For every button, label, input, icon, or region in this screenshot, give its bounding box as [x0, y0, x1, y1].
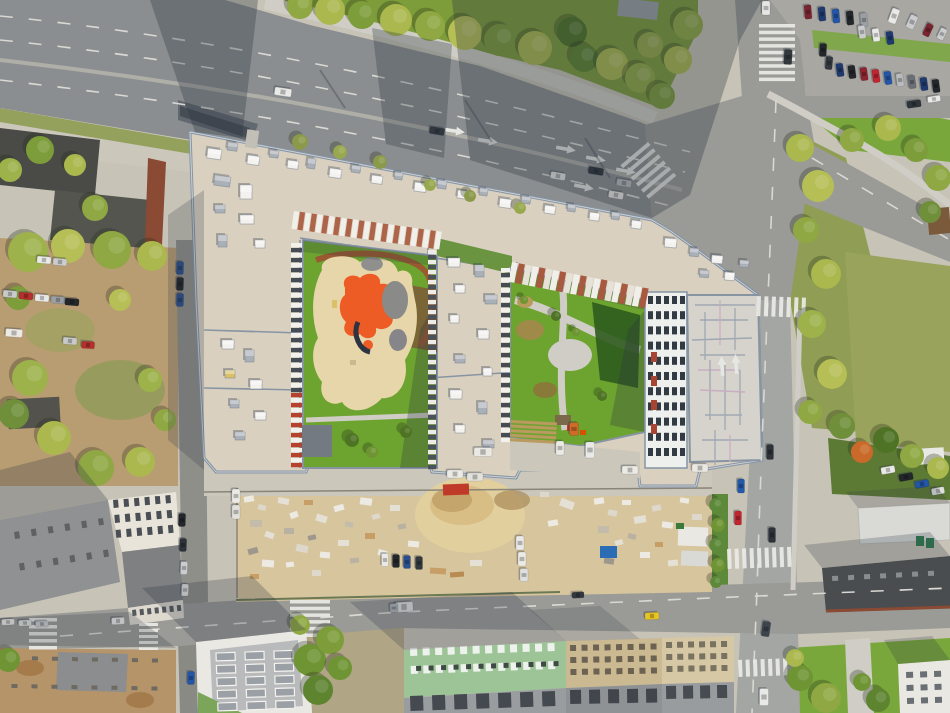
window-cell — [664, 342, 669, 350]
window-cell — [648, 311, 653, 319]
window-cell — [616, 644, 622, 650]
facade-stripe — [428, 375, 436, 379]
window-cell — [478, 664, 483, 669]
facade-stripe — [501, 368, 510, 372]
window-cell — [593, 644, 599, 650]
window-cell — [581, 645, 587, 651]
hvac-top — [250, 380, 262, 385]
zebra-stripe — [787, 547, 792, 567]
window-cell — [680, 342, 685, 350]
window-cell — [553, 661, 558, 666]
hvac-top — [215, 205, 225, 209]
hvac-unit — [542, 203, 556, 215]
window-grid — [906, 671, 942, 704]
window-cell — [672, 342, 677, 350]
facade-stripe — [501, 388, 510, 392]
window-cell — [217, 677, 236, 686]
car-glass — [522, 573, 527, 577]
zebra-stripe — [290, 600, 330, 604]
window-cell — [721, 653, 727, 659]
window-cell — [664, 433, 669, 441]
window-cell — [680, 326, 685, 334]
window-cell — [274, 650, 293, 659]
hvac-top — [240, 185, 252, 192]
tree-highlight — [928, 204, 938, 214]
hvac-unit — [220, 338, 234, 349]
window-cell — [135, 513, 141, 521]
hvac-unit — [476, 400, 487, 414]
debris-item — [443, 484, 469, 496]
window-cell — [605, 668, 611, 674]
car-glass — [886, 468, 891, 473]
car-glass — [480, 449, 485, 454]
window-cell — [570, 657, 576, 663]
facade-stripe — [501, 288, 510, 292]
debris-item — [600, 546, 617, 558]
window-cell — [582, 669, 588, 675]
tree-highlight — [148, 372, 159, 383]
facade-stripe — [428, 290, 436, 294]
facade-stripe — [428, 410, 436, 414]
zebra-stripe — [759, 71, 795, 75]
tree-highlight — [371, 448, 376, 453]
facade-stripe — [428, 295, 436, 299]
window-cell — [71, 685, 77, 689]
facade-stripe — [291, 458, 302, 462]
facade-stripe — [428, 400, 436, 404]
facade-stripe — [428, 300, 436, 304]
window-cell — [680, 402, 685, 410]
hvac-unit — [473, 263, 484, 277]
car — [466, 472, 484, 482]
car-glass — [761, 694, 766, 699]
hvac-unit — [446, 256, 460, 267]
facade-stripe — [291, 263, 302, 267]
tree-highlight — [575, 329, 579, 333]
car — [391, 553, 400, 568]
zebra-stripe — [772, 547, 777, 567]
tree-highlight — [936, 460, 946, 470]
hvac-unit — [483, 293, 497, 304]
facade-stripe — [428, 325, 436, 329]
car-glass — [558, 446, 563, 450]
car-glass — [68, 339, 72, 343]
car-glass — [8, 292, 12, 296]
car — [515, 535, 525, 551]
facade-stripe — [291, 243, 302, 247]
hvac-unit — [709, 253, 723, 264]
tree-highlight — [427, 16, 441, 30]
car — [584, 441, 595, 459]
debris-item — [692, 514, 702, 520]
hvac-unit — [662, 236, 677, 248]
window-cell — [721, 665, 727, 671]
tree-highlight — [523, 297, 527, 301]
window-cell — [157, 526, 163, 534]
zebra-stripe — [738, 660, 743, 677]
car-glass — [189, 676, 193, 680]
hvac-top — [218, 235, 227, 241]
window-cell — [114, 515, 120, 523]
window-cell — [650, 643, 656, 649]
hvac-top — [455, 355, 465, 359]
window-cell — [934, 671, 941, 677]
window-cell — [410, 696, 424, 711]
stair-structure — [245, 129, 259, 148]
window-cell — [832, 576, 838, 581]
car-glass — [473, 475, 478, 480]
rubber-surface-gray — [389, 329, 407, 351]
car — [517, 551, 527, 567]
car-glass — [698, 466, 703, 471]
facade-stripe — [501, 308, 510, 312]
tree-highlight — [717, 520, 723, 526]
window-cell — [664, 372, 669, 380]
tree-highlight — [839, 417, 851, 429]
window-cell — [672, 311, 677, 319]
facade-stripe — [291, 313, 302, 317]
window-cell — [639, 668, 645, 674]
facade-stripe — [428, 465, 436, 469]
facade-stripe — [291, 333, 302, 337]
car-glass — [827, 61, 832, 65]
tree-highlight — [469, 192, 474, 197]
window-cell — [112, 658, 118, 662]
facade-stripe — [291, 283, 302, 287]
facade-stripe — [291, 258, 302, 262]
tree-highlight — [327, 0, 341, 13]
debris-item — [676, 523, 684, 529]
facade-stripe — [428, 415, 436, 419]
hvac-top — [240, 215, 254, 220]
hvac-top — [483, 440, 494, 444]
window-cell — [453, 665, 458, 670]
facade-stripe — [501, 283, 510, 287]
tree-highlight — [823, 688, 837, 702]
courtyard-west — [300, 240, 437, 468]
hvac-unit — [205, 146, 223, 160]
facade-stripe — [501, 438, 510, 442]
car-glass — [862, 18, 867, 23]
window-cell — [92, 657, 98, 661]
car-glass — [898, 78, 903, 82]
debris-item — [450, 572, 464, 578]
tree-highlight — [8, 162, 19, 173]
window-cell — [907, 698, 914, 704]
car — [231, 488, 241, 504]
car — [621, 465, 639, 475]
window-cell — [672, 418, 677, 426]
window-cell — [677, 666, 683, 672]
facade-stripe — [428, 405, 436, 409]
facade-stripe — [501, 428, 510, 432]
car — [767, 526, 776, 543]
tree-highlight — [429, 181, 434, 186]
facade-stripe — [428, 330, 436, 334]
car-glass — [874, 74, 879, 78]
car-glass — [739, 484, 743, 488]
car — [231, 504, 241, 520]
zebra-stripe — [749, 548, 754, 568]
window-cell — [131, 686, 137, 690]
car — [4, 327, 23, 338]
window-cell — [672, 372, 677, 380]
facade-stripe — [428, 345, 436, 349]
window-cell — [147, 527, 153, 535]
tree-highlight — [715, 540, 721, 546]
window-cell — [52, 657, 58, 661]
facade-stripe — [501, 433, 510, 437]
hvac-unit — [285, 158, 299, 170]
debris-item — [304, 500, 313, 505]
window-cell — [91, 685, 97, 689]
window-cell — [441, 665, 446, 670]
hvac-unit — [212, 173, 231, 187]
window-cell — [664, 357, 669, 365]
car — [691, 463, 709, 473]
facade-stripe — [501, 323, 510, 327]
facade-stripe — [291, 373, 302, 377]
tree-highlight — [149, 246, 163, 260]
window-cell — [672, 433, 677, 441]
tree-highlight — [860, 676, 868, 684]
car-glass — [821, 48, 825, 52]
debris-item — [430, 568, 446, 575]
facade-stripe — [291, 358, 302, 362]
window-cell — [72, 657, 78, 661]
facade-stripe — [501, 343, 510, 347]
hvac-top — [222, 340, 234, 345]
car-glass — [70, 300, 74, 304]
window-cell — [146, 512, 152, 520]
car — [63, 296, 79, 306]
zebra-stripe — [290, 607, 330, 611]
window-cell — [168, 525, 174, 533]
window-cell — [628, 668, 634, 674]
car-glass — [280, 89, 286, 94]
window-cell — [688, 654, 694, 660]
window-cell — [503, 663, 508, 668]
hvac-top — [478, 330, 489, 335]
car-glass — [806, 10, 811, 15]
tree-highlight — [815, 175, 829, 189]
facade-stripe — [291, 253, 302, 257]
debris-item — [284, 528, 294, 534]
window-cell — [666, 642, 672, 648]
tree-highlight — [797, 138, 810, 151]
window-cell — [151, 686, 157, 690]
window-cell — [616, 668, 622, 674]
window-cell — [116, 529, 122, 537]
window-cell — [677, 642, 683, 648]
facade-stripe — [428, 430, 436, 434]
hvac-unit — [448, 388, 462, 399]
debris-item — [598, 526, 609, 533]
car — [818, 42, 827, 57]
tree-highlight — [24, 238, 42, 256]
window-cell — [589, 689, 600, 703]
hvac-unit — [245, 153, 260, 166]
debris-item — [622, 500, 631, 505]
car — [816, 5, 826, 21]
tree-highlight — [65, 234, 80, 249]
facade-stripe — [291, 403, 302, 407]
window-cell — [688, 642, 694, 648]
tree-highlight — [914, 142, 925, 153]
facade-stripe — [501, 328, 510, 332]
tree-highlight — [808, 404, 819, 415]
window-cell — [216, 665, 235, 674]
facade-stripe — [291, 248, 302, 252]
window-cell — [491, 663, 496, 668]
window-cell — [664, 448, 669, 456]
pavilion-roof — [300, 425, 332, 457]
window-cell — [147, 608, 152, 614]
window-cell — [672, 402, 677, 410]
facade-stripe — [291, 453, 302, 457]
car-glass — [770, 533, 774, 538]
debris-item — [390, 505, 400, 511]
zebra-stripe — [759, 37, 795, 41]
tree-highlight — [793, 652, 801, 660]
car-glass — [520, 557, 525, 561]
car-glass — [862, 72, 867, 76]
window-cell — [672, 448, 677, 456]
car — [35, 254, 51, 264]
facade-stripe — [428, 305, 436, 309]
tree-highlight — [829, 364, 843, 378]
window-cell — [593, 656, 599, 662]
window-cell — [672, 326, 677, 334]
hvac-top — [455, 425, 465, 429]
facade-stripe — [291, 268, 302, 272]
debris-item — [320, 551, 331, 558]
car-glass — [180, 518, 184, 522]
window-cell — [648, 296, 653, 304]
facade-stripe — [428, 275, 436, 279]
car-glass — [56, 298, 60, 302]
hvac-unit — [243, 348, 254, 362]
beige-roof-building — [566, 638, 662, 688]
play-equipment-orange — [580, 430, 586, 435]
tree-highlight — [393, 9, 407, 23]
hvac-top — [450, 315, 459, 319]
window-cell — [132, 658, 138, 662]
car-glass — [587, 448, 592, 453]
debris-item — [250, 520, 262, 527]
window-cell — [648, 342, 653, 350]
zebra-crossing — [727, 547, 792, 569]
car-glass — [628, 468, 633, 473]
car — [61, 335, 77, 345]
car — [33, 292, 49, 302]
window-cell — [664, 418, 669, 426]
flower-bed — [533, 382, 557, 398]
car-glass — [874, 33, 879, 37]
debris-item — [338, 540, 349, 546]
car — [446, 469, 464, 479]
window-cell — [666, 686, 676, 699]
window-cell — [275, 688, 294, 697]
car — [568, 421, 579, 436]
car-glass — [763, 626, 768, 631]
facade-stripe — [291, 413, 302, 417]
roof-rust-patch — [126, 692, 154, 708]
debris-item — [408, 541, 419, 548]
window-cell — [699, 665, 705, 671]
tree-highlight — [6, 652, 17, 663]
window-cell — [880, 573, 886, 578]
hvac-unit — [327, 166, 342, 179]
hvac-unit — [238, 183, 252, 199]
debris-item — [681, 551, 709, 567]
zebra-stripe — [771, 297, 776, 317]
facade-stripe — [501, 373, 510, 377]
car — [802, 3, 812, 19]
window-cell — [664, 326, 669, 334]
debris-item — [640, 552, 650, 558]
window-cell — [51, 685, 57, 689]
car-glass — [24, 294, 28, 298]
car — [643, 611, 659, 620]
window-cell — [460, 646, 467, 654]
window-cell — [605, 656, 611, 662]
window-cell — [672, 296, 677, 304]
window-cell — [864, 574, 870, 579]
window-cell — [497, 645, 504, 653]
car — [414, 555, 423, 570]
facade-stripe — [428, 260, 436, 264]
car-glass — [234, 510, 239, 514]
car — [765, 443, 774, 460]
zebra-stripe — [742, 548, 747, 568]
tree-highlight — [327, 630, 340, 643]
window-cell — [510, 644, 517, 652]
zebra-stripe — [768, 659, 773, 676]
car — [844, 9, 854, 25]
window-cell — [680, 418, 685, 426]
car-glass — [42, 258, 46, 262]
tree-highlight — [379, 157, 385, 163]
facade-stripe — [428, 370, 436, 374]
tree-highlight — [37, 140, 50, 153]
debris-item — [540, 492, 549, 497]
window-cell — [155, 496, 161, 504]
window-cell — [710, 641, 716, 647]
window-cell — [275, 675, 294, 684]
field-right — [845, 252, 950, 452]
facade-stripe — [428, 420, 436, 424]
window-cell — [656, 342, 661, 350]
car — [830, 7, 840, 23]
facade-stripe — [501, 353, 510, 357]
tree-highlight — [717, 560, 723, 566]
facade-stripe — [291, 328, 302, 332]
window-cell — [134, 498, 140, 506]
car — [823, 55, 833, 70]
hvac-top — [450, 390, 462, 395]
facade-stripe-band — [501, 268, 510, 442]
facade-stripe — [291, 363, 302, 367]
facade-stripe — [291, 288, 302, 292]
window-cell — [666, 666, 672, 672]
facade-stripe — [291, 343, 302, 347]
window-cell — [688, 666, 694, 672]
facade-stripe — [501, 293, 510, 297]
facade-stripe — [291, 388, 302, 392]
window-cell — [246, 676, 265, 685]
window-cell — [570, 690, 581, 704]
